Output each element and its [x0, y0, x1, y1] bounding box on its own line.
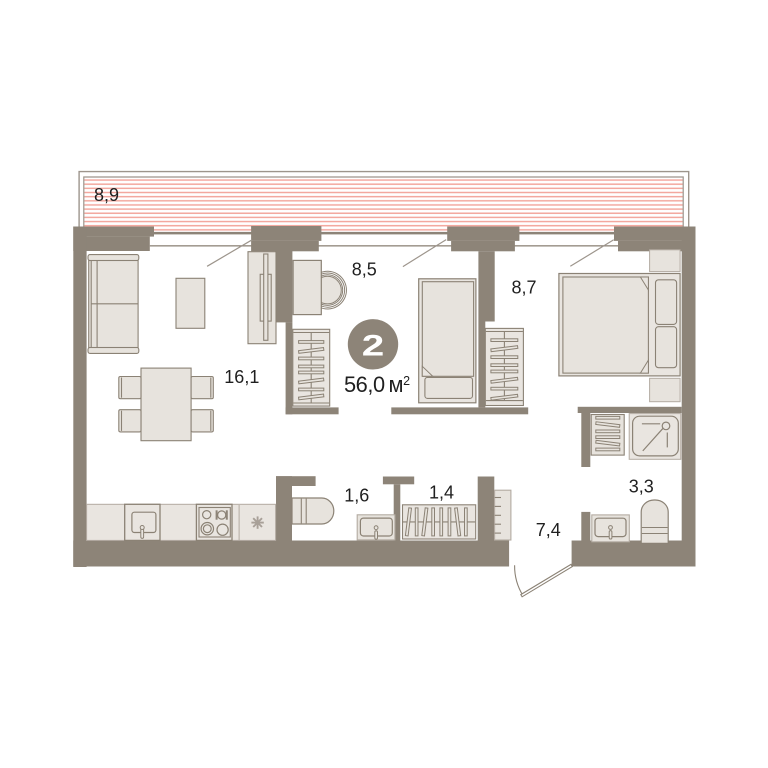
svg-text:2: 2: [362, 328, 385, 362]
svg-text:8,9: 8,9: [94, 185, 119, 205]
svg-text:8,5: 8,5: [352, 259, 377, 279]
svg-text:8,7: 8,7: [512, 277, 537, 297]
svg-text:3,3: 3,3: [629, 477, 654, 497]
svg-text:7,4: 7,4: [536, 520, 561, 540]
svg-text:16,1: 16,1: [224, 367, 259, 387]
svg-text:56,0 м2: 56,0 м2: [344, 372, 410, 397]
svg-text:1,6: 1,6: [344, 486, 369, 506]
svg-text:1,4: 1,4: [429, 483, 454, 503]
